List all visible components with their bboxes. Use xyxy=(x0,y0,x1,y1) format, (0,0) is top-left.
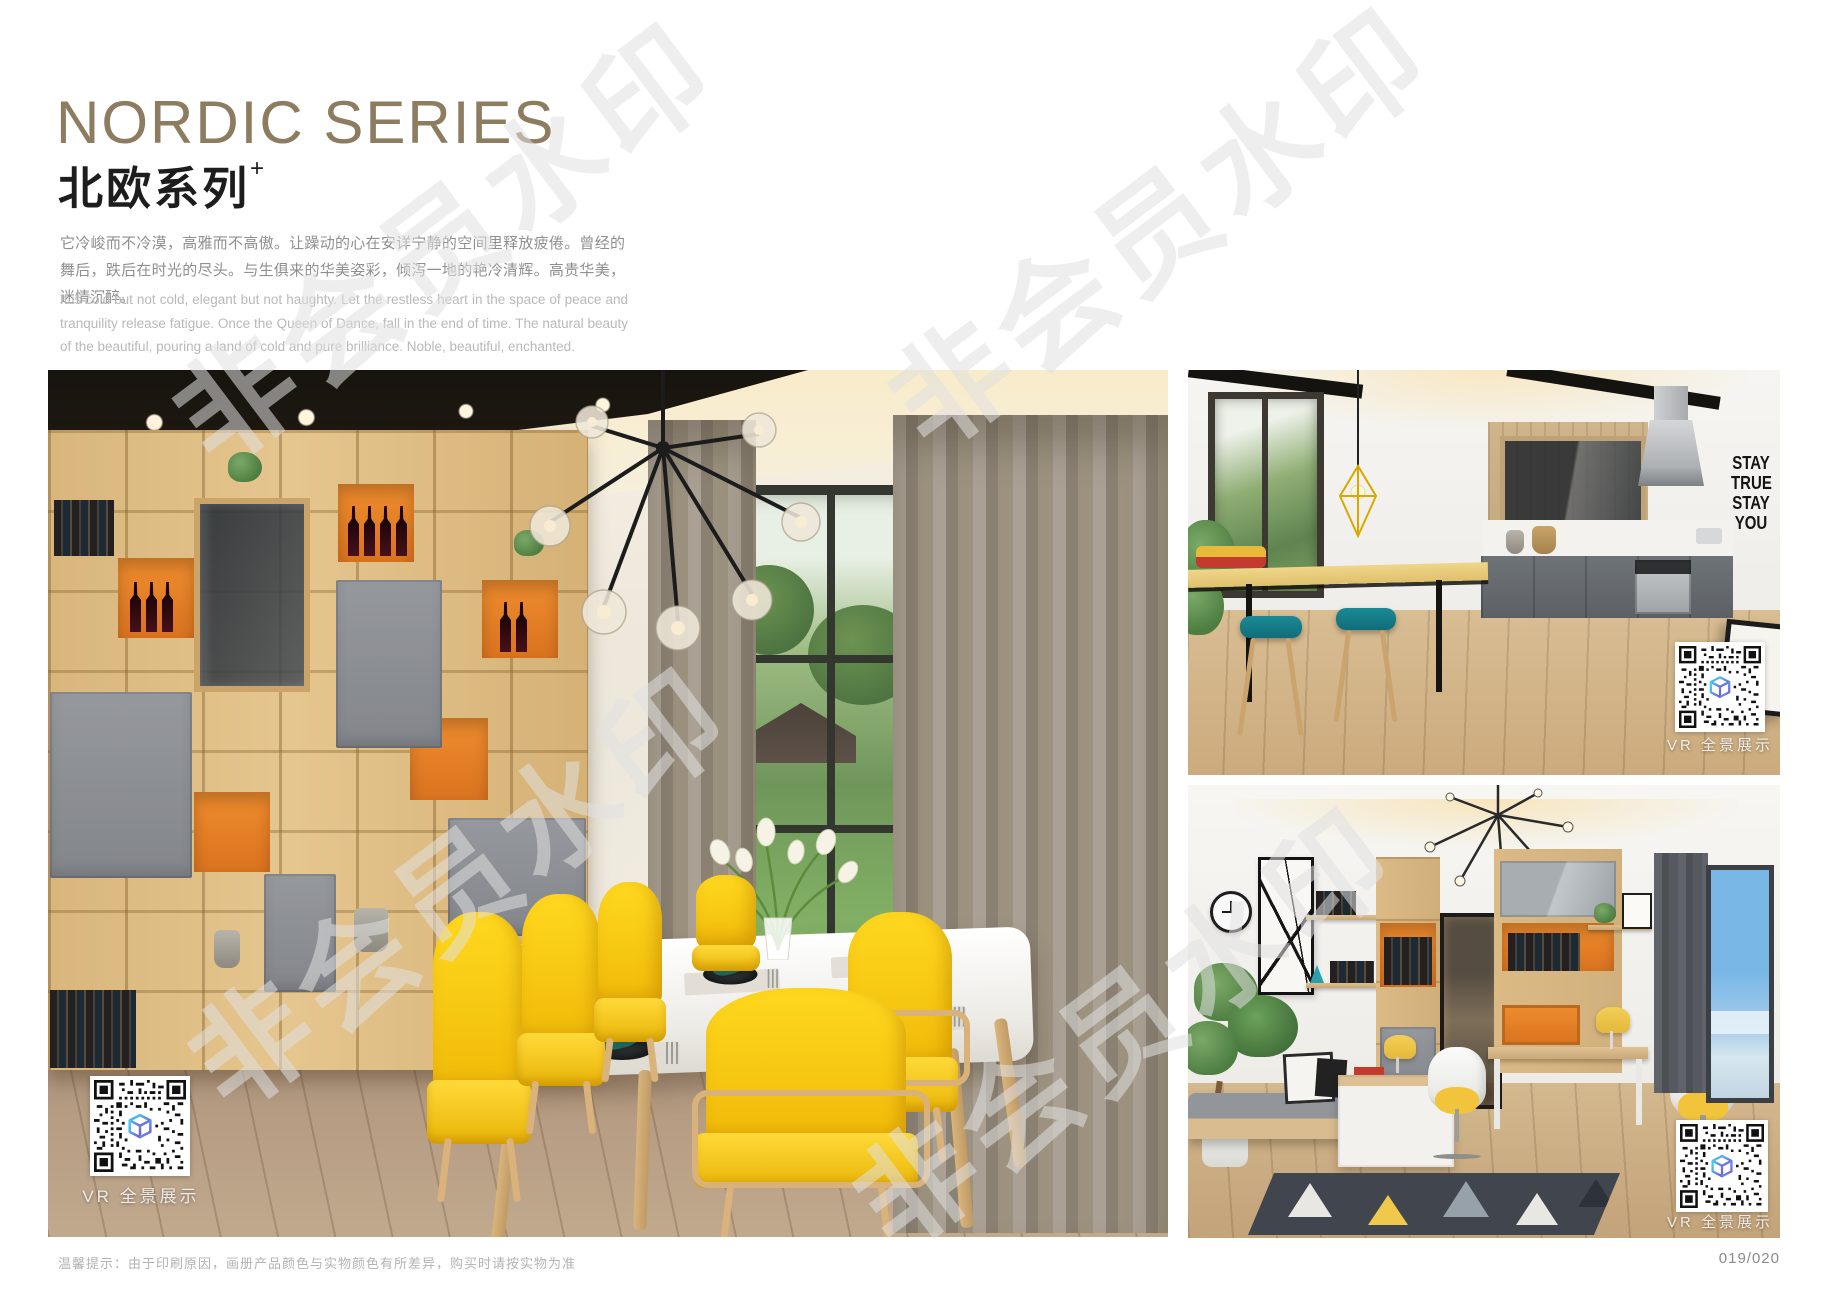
subtitle-text: 北欧系列 xyxy=(58,163,250,214)
succulent-plant xyxy=(1594,903,1616,923)
counter-crate xyxy=(1532,526,1556,554)
teal-bar-stool xyxy=(1336,608,1396,630)
built-in-oven xyxy=(1635,560,1691,614)
page-title: NORDIC SERIES xyxy=(56,88,555,157)
range-hood-chimney xyxy=(1654,386,1688,422)
footer-print-note: 温馨提示：由于印刷原因，画册产品颜色与实物颜色有所差异，购买时请按实物为准 xyxy=(58,1253,576,1272)
stacked-bowls xyxy=(1196,546,1266,568)
study-room-photo: VR 全景展示 xyxy=(1188,785,1780,1238)
orange-shelf-cell xyxy=(194,792,270,872)
wall-art-text: STAY TRUE STAY YOU xyxy=(1731,454,1771,534)
vr-panorama-label: VR 全景展示 xyxy=(1646,734,1780,755)
island-leg xyxy=(1436,580,1442,692)
gray-cabinet-door xyxy=(50,692,192,878)
gray-cabinet-door xyxy=(264,874,336,992)
page-number: 019/020 xyxy=(1680,1250,1780,1267)
desk-right xyxy=(1488,1047,1648,1059)
wall-art-line: STAY xyxy=(1731,494,1771,514)
geometric-rug xyxy=(1248,1173,1620,1235)
glass-display-cabinet xyxy=(194,498,310,692)
desk-lamp xyxy=(1384,1035,1416,1059)
desk-lamp xyxy=(1596,1007,1630,1033)
description-english: It is cold but not cold, elegant but not… xyxy=(60,288,628,359)
counter-jar xyxy=(1506,530,1524,554)
sky-window xyxy=(1706,865,1774,1103)
vr-panorama-label: VR 全景展示 xyxy=(1646,1211,1780,1232)
vr-qr-code xyxy=(90,1076,190,1176)
lamp-arm xyxy=(1396,1057,1399,1073)
yellow-dining-chair xyxy=(433,912,525,1202)
ceramic-jar xyxy=(214,930,240,968)
teal-bar-stool xyxy=(1240,616,1302,638)
dark-curtain xyxy=(1654,853,1708,1093)
wood-shelving-unit xyxy=(1494,849,1622,1073)
wall-art-line: TRUE xyxy=(1731,474,1771,494)
wall-art-line: YOU xyxy=(1731,514,1771,534)
yellow-dining-chair xyxy=(598,882,662,1082)
desk-leg xyxy=(1494,1059,1500,1129)
chair-wood-armrest xyxy=(692,1090,930,1188)
wall-shelf xyxy=(1306,983,1378,988)
vr-panorama-label: VR 全景展示 xyxy=(66,1182,216,1207)
gray-lower-cabinets xyxy=(1481,556,1733,618)
gray-cabinet-door xyxy=(336,580,442,748)
potted-plant xyxy=(1228,995,1298,1057)
cloud-band xyxy=(1711,1011,1769,1034)
books-on-shelf xyxy=(1384,937,1432,985)
abstract-art-frame xyxy=(1258,857,1314,995)
rug-triangle xyxy=(1516,1193,1558,1225)
page-subtitle-cn: 北欧系列+ xyxy=(58,152,267,217)
yellow-dining-chair xyxy=(696,875,756,995)
cooking-pot xyxy=(1696,528,1722,544)
house-roof-outside xyxy=(746,703,856,763)
orange-cubby-grid xyxy=(1502,1005,1580,1045)
sputnik-chandelier xyxy=(468,370,848,670)
subtitle-plus-mark: + xyxy=(250,155,267,182)
ceramic-jar xyxy=(354,908,388,952)
white-shell-chair xyxy=(1428,1047,1486,1159)
rug-triangle xyxy=(1368,1195,1408,1225)
glass-wall-cabinet xyxy=(1500,436,1646,530)
shelf-plant xyxy=(228,452,262,482)
books-on-shelf xyxy=(50,990,136,1068)
small-frame xyxy=(1622,893,1652,929)
dining-room-photo: VR 全景展示 xyxy=(48,370,1168,1237)
kitchen-photo: STAY TRUE STAY YOU VR 全景展示 xyxy=(1188,370,1780,775)
wire-cage-pendant-lamp xyxy=(1328,370,1388,540)
red-books xyxy=(1354,1067,1384,1075)
wall-art-line: STAY xyxy=(1731,454,1771,474)
wall-shelf xyxy=(1306,915,1378,920)
books-on-shelf xyxy=(1330,961,1374,983)
wall-clock xyxy=(1210,891,1252,933)
books-on-shelf xyxy=(54,500,114,556)
books-on-shelf xyxy=(1316,891,1356,915)
books-on-shelf xyxy=(1508,933,1580,971)
desk-leg xyxy=(1636,1059,1642,1125)
yellow-dining-chair xyxy=(522,894,600,1134)
vr-qr-code xyxy=(1675,642,1765,732)
catalog-page: NORDIC SERIES 北欧系列+ 它冷峻而不冷漠，高雅而不高傲。让躁动的心… xyxy=(0,0,1836,1307)
rug-triangle xyxy=(1288,1183,1332,1217)
vr-qr-code xyxy=(1676,1120,1768,1212)
rug-triangle xyxy=(1443,1181,1489,1217)
lamp-arm xyxy=(1610,1031,1613,1049)
